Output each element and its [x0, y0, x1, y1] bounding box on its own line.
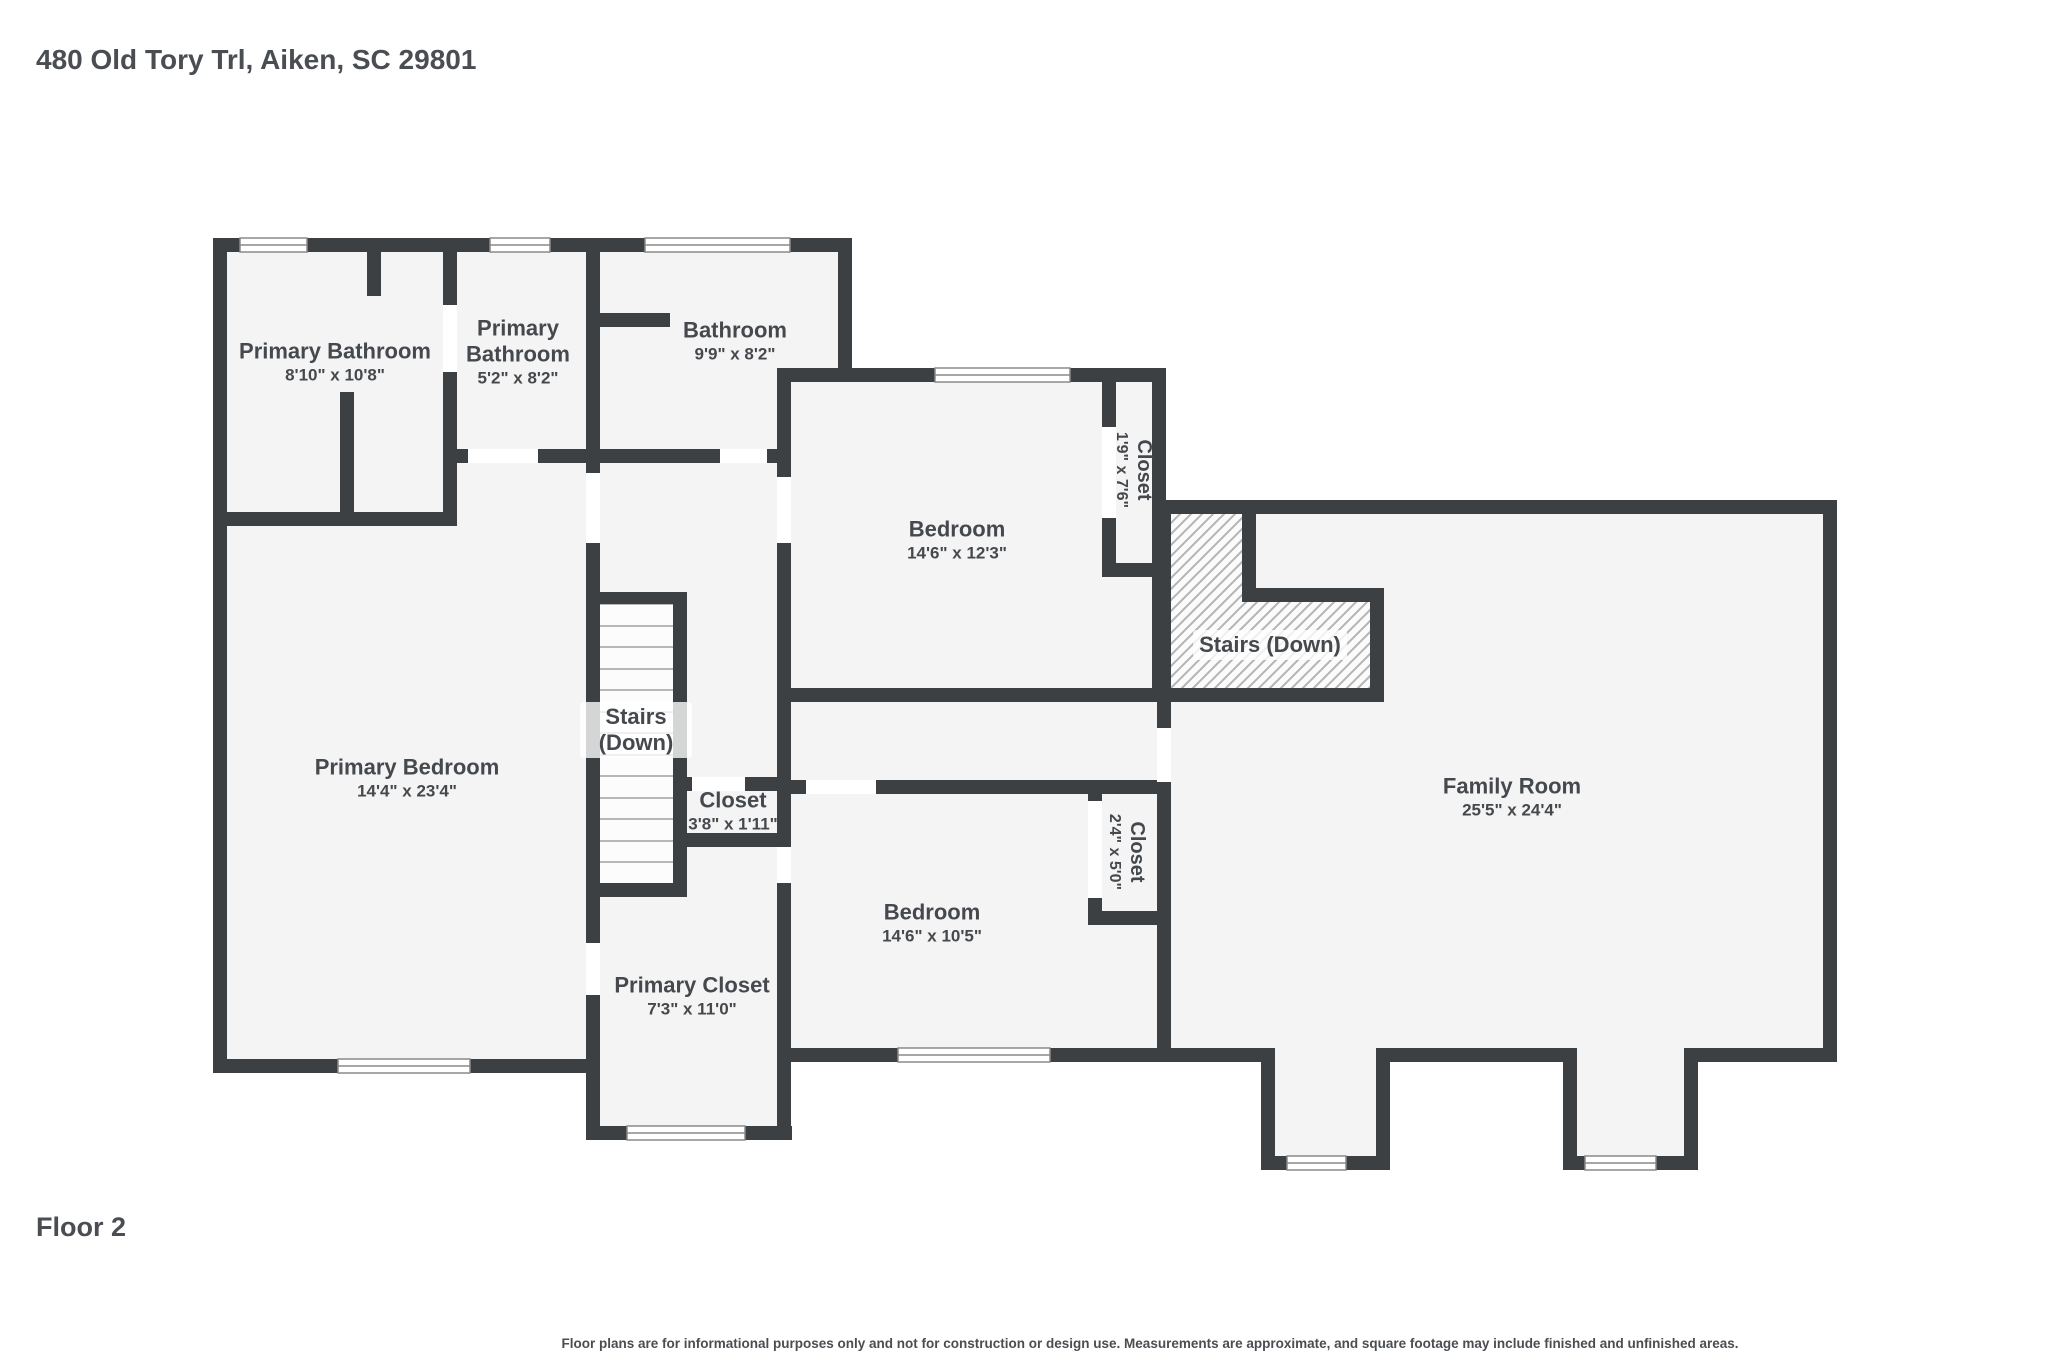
- room-label-primary-bedroom: Primary Bedroom 14'4" x 23'4": [315, 754, 500, 801]
- room-label-primary-bathroom-2: Primary Bathroom 5'2" x 8'2": [456, 315, 580, 388]
- floorplan-drawing: [0, 0, 2048, 1364]
- room-label-closet-upper: Closet 1'9" x 7'6": [1111, 432, 1155, 508]
- room-label-closet-lower: Closet 2'4" x 5'0": [1104, 814, 1148, 890]
- room-label-stairs-center: Stairs (Down): [580, 702, 692, 758]
- room-label-bedroom-upper: Bedroom 14'6" x 12'3": [907, 516, 1007, 563]
- room-label-primary-bathroom-1: Primary Bathroom 8'10" x 10'8": [239, 338, 431, 385]
- floorplan-page: 480 Old Tory Trl, Aiken, SC 29801 Floor …: [0, 0, 2048, 1364]
- room-label-bedroom-lower: Bedroom 14'6" x 10'5": [882, 899, 982, 946]
- room-label-stairs-family: Stairs (Down): [1193, 630, 1347, 660]
- room-label-closet-hall: Closet 3'8" x 1'11": [688, 787, 777, 834]
- room-label-bathroom: Bathroom 9'9" x 8'2": [683, 317, 787, 364]
- room-label-family-room: Family Room 25'5" x 24'4": [1443, 773, 1581, 820]
- address-title: 480 Old Tory Trl, Aiken, SC 29801: [36, 44, 476, 76]
- disclaimer-text: Floor plans are for informational purpos…: [562, 1336, 1739, 1351]
- floor-label: Floor 2: [36, 1212, 126, 1243]
- room-label-primary-closet: Primary Closet 7'3" x 11'0": [614, 972, 769, 1019]
